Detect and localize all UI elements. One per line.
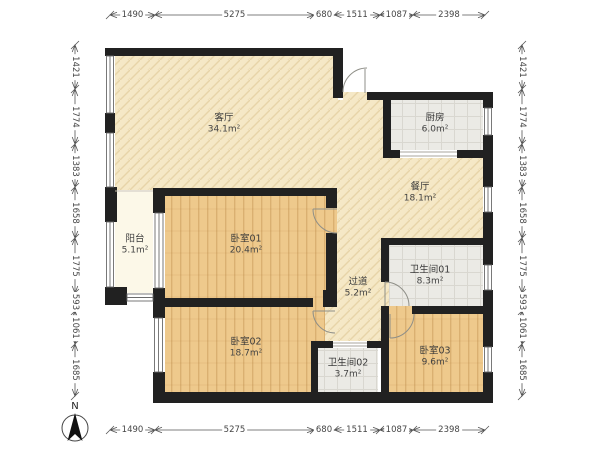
- dim-left-5: 1775: [70, 253, 80, 279]
- dim-right-4: 1658: [517, 200, 527, 226]
- north-compass: N: [62, 401, 88, 441]
- wall-bedroom01-left-pier1: [153, 196, 165, 213]
- dim-right-1: 1421: [517, 54, 527, 80]
- dim-right-6: 593: [517, 292, 527, 312]
- wall-bedroom01-right-upper: [326, 196, 337, 208]
- wall-right-seg4: [483, 290, 493, 347]
- window-living-2: [107, 133, 114, 187]
- floorplan-drawing: N: [0, 0, 600, 450]
- window-bathroom01-right: [485, 265, 492, 290]
- wall-entry-top: [367, 92, 493, 100]
- dim-bottom-2: 5275: [222, 425, 248, 435]
- window-balcony-left: [107, 222, 114, 287]
- window-bedroom02-left: [155, 318, 163, 372]
- window-dining-right: [485, 187, 492, 212]
- kitchen-opening: [400, 152, 457, 156]
- dim-top-1: 1490: [120, 10, 146, 20]
- dim-bottom-3: 680: [314, 425, 334, 435]
- living-room-floor: [115, 56, 338, 190]
- entrance-door: [343, 68, 367, 93]
- wall-bottom: [153, 392, 493, 403]
- bedroom01-doorway: [326, 208, 337, 233]
- dim-left-7: 1061: [70, 315, 80, 341]
- dim-top-3: 680: [314, 10, 334, 20]
- wall-top-jog: [333, 48, 343, 98]
- wall-divider-corner: [323, 290, 337, 307]
- wall-bedroom02-right: [311, 341, 318, 392]
- bedroom03-doorway: [389, 306, 412, 314]
- bedroom02-floor: [165, 307, 311, 392]
- entrance-doorway: [343, 92, 367, 100]
- floorplan-canvas: N 客厅 34.1m² 厨房 6.0m² 餐厅 18.1m² 阳台 5.1m² …: [0, 0, 600, 450]
- wall-bedroom01-right-lower: [326, 233, 337, 298]
- bedroom01-floor: [165, 196, 326, 298]
- north-arrow-icon: [68, 413, 83, 441]
- bathroom02-floor: [318, 348, 378, 392]
- wall-top: [105, 48, 343, 56]
- dim-right-8: 1685: [517, 357, 527, 383]
- wall-right-seg3: [483, 212, 493, 265]
- wall-bedroom03-left: [381, 306, 389, 392]
- wall-bedroom-divider: [153, 298, 313, 307]
- wall-bedroom02-left-lower: [153, 372, 165, 403]
- wall-bedroom01-left-pier2: [153, 288, 165, 298]
- wall-bedroom01-top: [153, 188, 337, 196]
- dim-bottom-4: 1511: [344, 425, 370, 435]
- entry-floor: [333, 100, 383, 158]
- window-living-1: [107, 56, 114, 113]
- balcony-floor: [115, 192, 153, 293]
- bedroom03-floor: [389, 314, 483, 392]
- dim-top-4: 1511: [344, 10, 370, 20]
- dim-left-2: 1774: [70, 104, 80, 130]
- wall-kitchen-bottom-right: [457, 150, 483, 158]
- wall-bathroom02-top-left: [311, 341, 333, 348]
- wall-right-seg2: [483, 135, 493, 187]
- wall-kitchen-bottom-left: [383, 150, 400, 158]
- bedroom02-doorway: [313, 298, 323, 307]
- kitchen-floor: [391, 100, 483, 150]
- dim-left-1: 1421: [70, 54, 80, 80]
- wall-kitchen-left: [383, 100, 391, 158]
- dim-left-6: 593: [70, 292, 80, 312]
- wall-bathroom01-top: [381, 238, 483, 245]
- dim-bottom-6: 2398: [436, 425, 462, 435]
- dim-bottom-5: 1087: [384, 425, 410, 435]
- dim-top-5: 1087: [384, 10, 410, 20]
- wall-right-seg1: [483, 92, 493, 108]
- compass-north-label: N: [71, 401, 78, 412]
- dim-right-2: 1774: [517, 104, 527, 130]
- dimension-line-bottom: [106, 426, 489, 434]
- bathroom01-floor: [389, 245, 483, 307]
- window-bedroom01-balcony: [155, 213, 163, 288]
- window-kitchen-right: [485, 108, 492, 135]
- dim-top-2: 5275: [222, 10, 248, 20]
- dim-bottom-1: 1490: [120, 425, 146, 435]
- floor-fills: [115, 56, 483, 392]
- wall-left-pier2: [105, 187, 117, 222]
- window-bedroom03-right: [485, 347, 492, 372]
- wall-bathroom02-top-right: [367, 341, 383, 348]
- dim-top-6: 2398: [436, 10, 462, 20]
- dim-right-7: 1061: [517, 315, 527, 341]
- wall-left-pier1: [105, 113, 115, 133]
- bathroom02-opening: [333, 343, 367, 346]
- dimension-line-top: [106, 11, 489, 19]
- dim-left-3: 1383: [70, 153, 80, 179]
- window-balcony-bottom: [127, 294, 153, 301]
- dim-left-4: 1658: [70, 200, 80, 226]
- dim-left-8: 1685: [70, 357, 80, 383]
- wall-bedroom03-top: [412, 306, 483, 314]
- dim-right-5: 1775: [517, 253, 527, 279]
- wall-balcony-corner: [105, 287, 127, 305]
- dim-right-3: 1383: [517, 153, 527, 179]
